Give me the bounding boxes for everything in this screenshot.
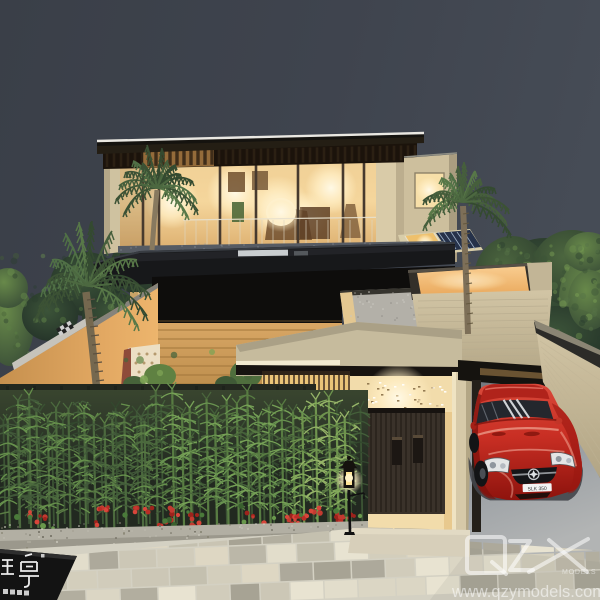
svg-text:www.qzymodels.com: www.qzymodels.com bbox=[451, 583, 600, 600]
svg-text:SLK 350: SLK 350 bbox=[528, 486, 548, 493]
svg-text:MODELS: MODELS bbox=[562, 569, 596, 576]
